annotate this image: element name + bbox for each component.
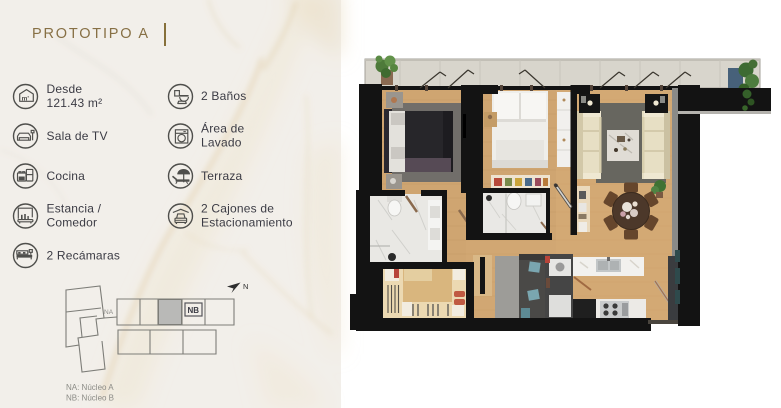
svg-text:Desde: Desde [47,82,83,96]
svg-text:Cocina: Cocina [47,169,86,183]
svg-text:NA: NA [104,309,114,316]
svg-text:Comedor: Comedor [47,216,98,230]
svg-text:m': m' [22,95,30,102]
svg-text:Terraza: Terraza [201,169,243,183]
svg-text:Sala de TV: Sala de TV [47,129,108,143]
svg-text:PROTOTIPO A: PROTOTIPO A [32,26,150,42]
svg-text:NB: Núcleo B: NB: Núcleo B [66,394,114,403]
svg-text:Área de: Área de [201,121,245,136]
svg-text:Estancia /: Estancia / [47,202,102,216]
svg-text:121.43 m²: 121.43 m² [47,96,103,110]
svg-text:2 Recámaras: 2 Recámaras [47,249,121,263]
svg-text:N: N [243,282,248,291]
svg-text:NA: Núcleo A: NA: Núcleo A [66,383,114,392]
svg-text:2 Cajones de: 2 Cajones de [201,202,274,216]
svg-text:Lavado: Lavado [201,136,242,150]
svg-text:Estacionamiento: Estacionamiento [201,216,293,230]
svg-text:NB: NB [188,306,200,315]
svg-text:2 Baños: 2 Baños [201,89,246,103]
